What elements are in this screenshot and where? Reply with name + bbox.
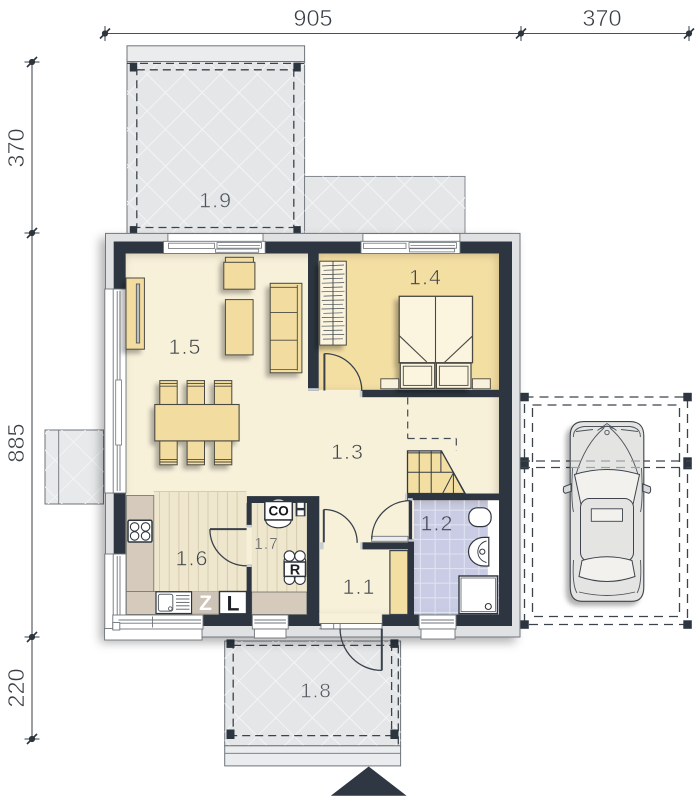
svg-text:905: 905 [293, 5, 332, 31]
svg-text:1.1: 1.1 [343, 575, 376, 599]
svg-text:L: L [227, 593, 240, 616]
svg-text:1.8: 1.8 [300, 680, 332, 703]
svg-text:1.6: 1.6 [176, 547, 209, 571]
svg-text:1.2: 1.2 [421, 512, 454, 536]
svg-text:220: 220 [3, 668, 29, 707]
svg-text:CO: CO [268, 503, 288, 518]
svg-text:Z: Z [199, 592, 212, 615]
svg-text:1.5: 1.5 [169, 335, 202, 359]
svg-text:370: 370 [582, 5, 621, 31]
svg-text:1.4: 1.4 [409, 266, 442, 290]
svg-text:1.9: 1.9 [199, 189, 232, 213]
svg-text:R: R [290, 563, 301, 579]
svg-text:1.3: 1.3 [331, 440, 364, 464]
svg-text:370: 370 [3, 128, 29, 167]
svg-text:1.7: 1.7 [254, 536, 279, 553]
svg-text:885: 885 [3, 423, 29, 462]
